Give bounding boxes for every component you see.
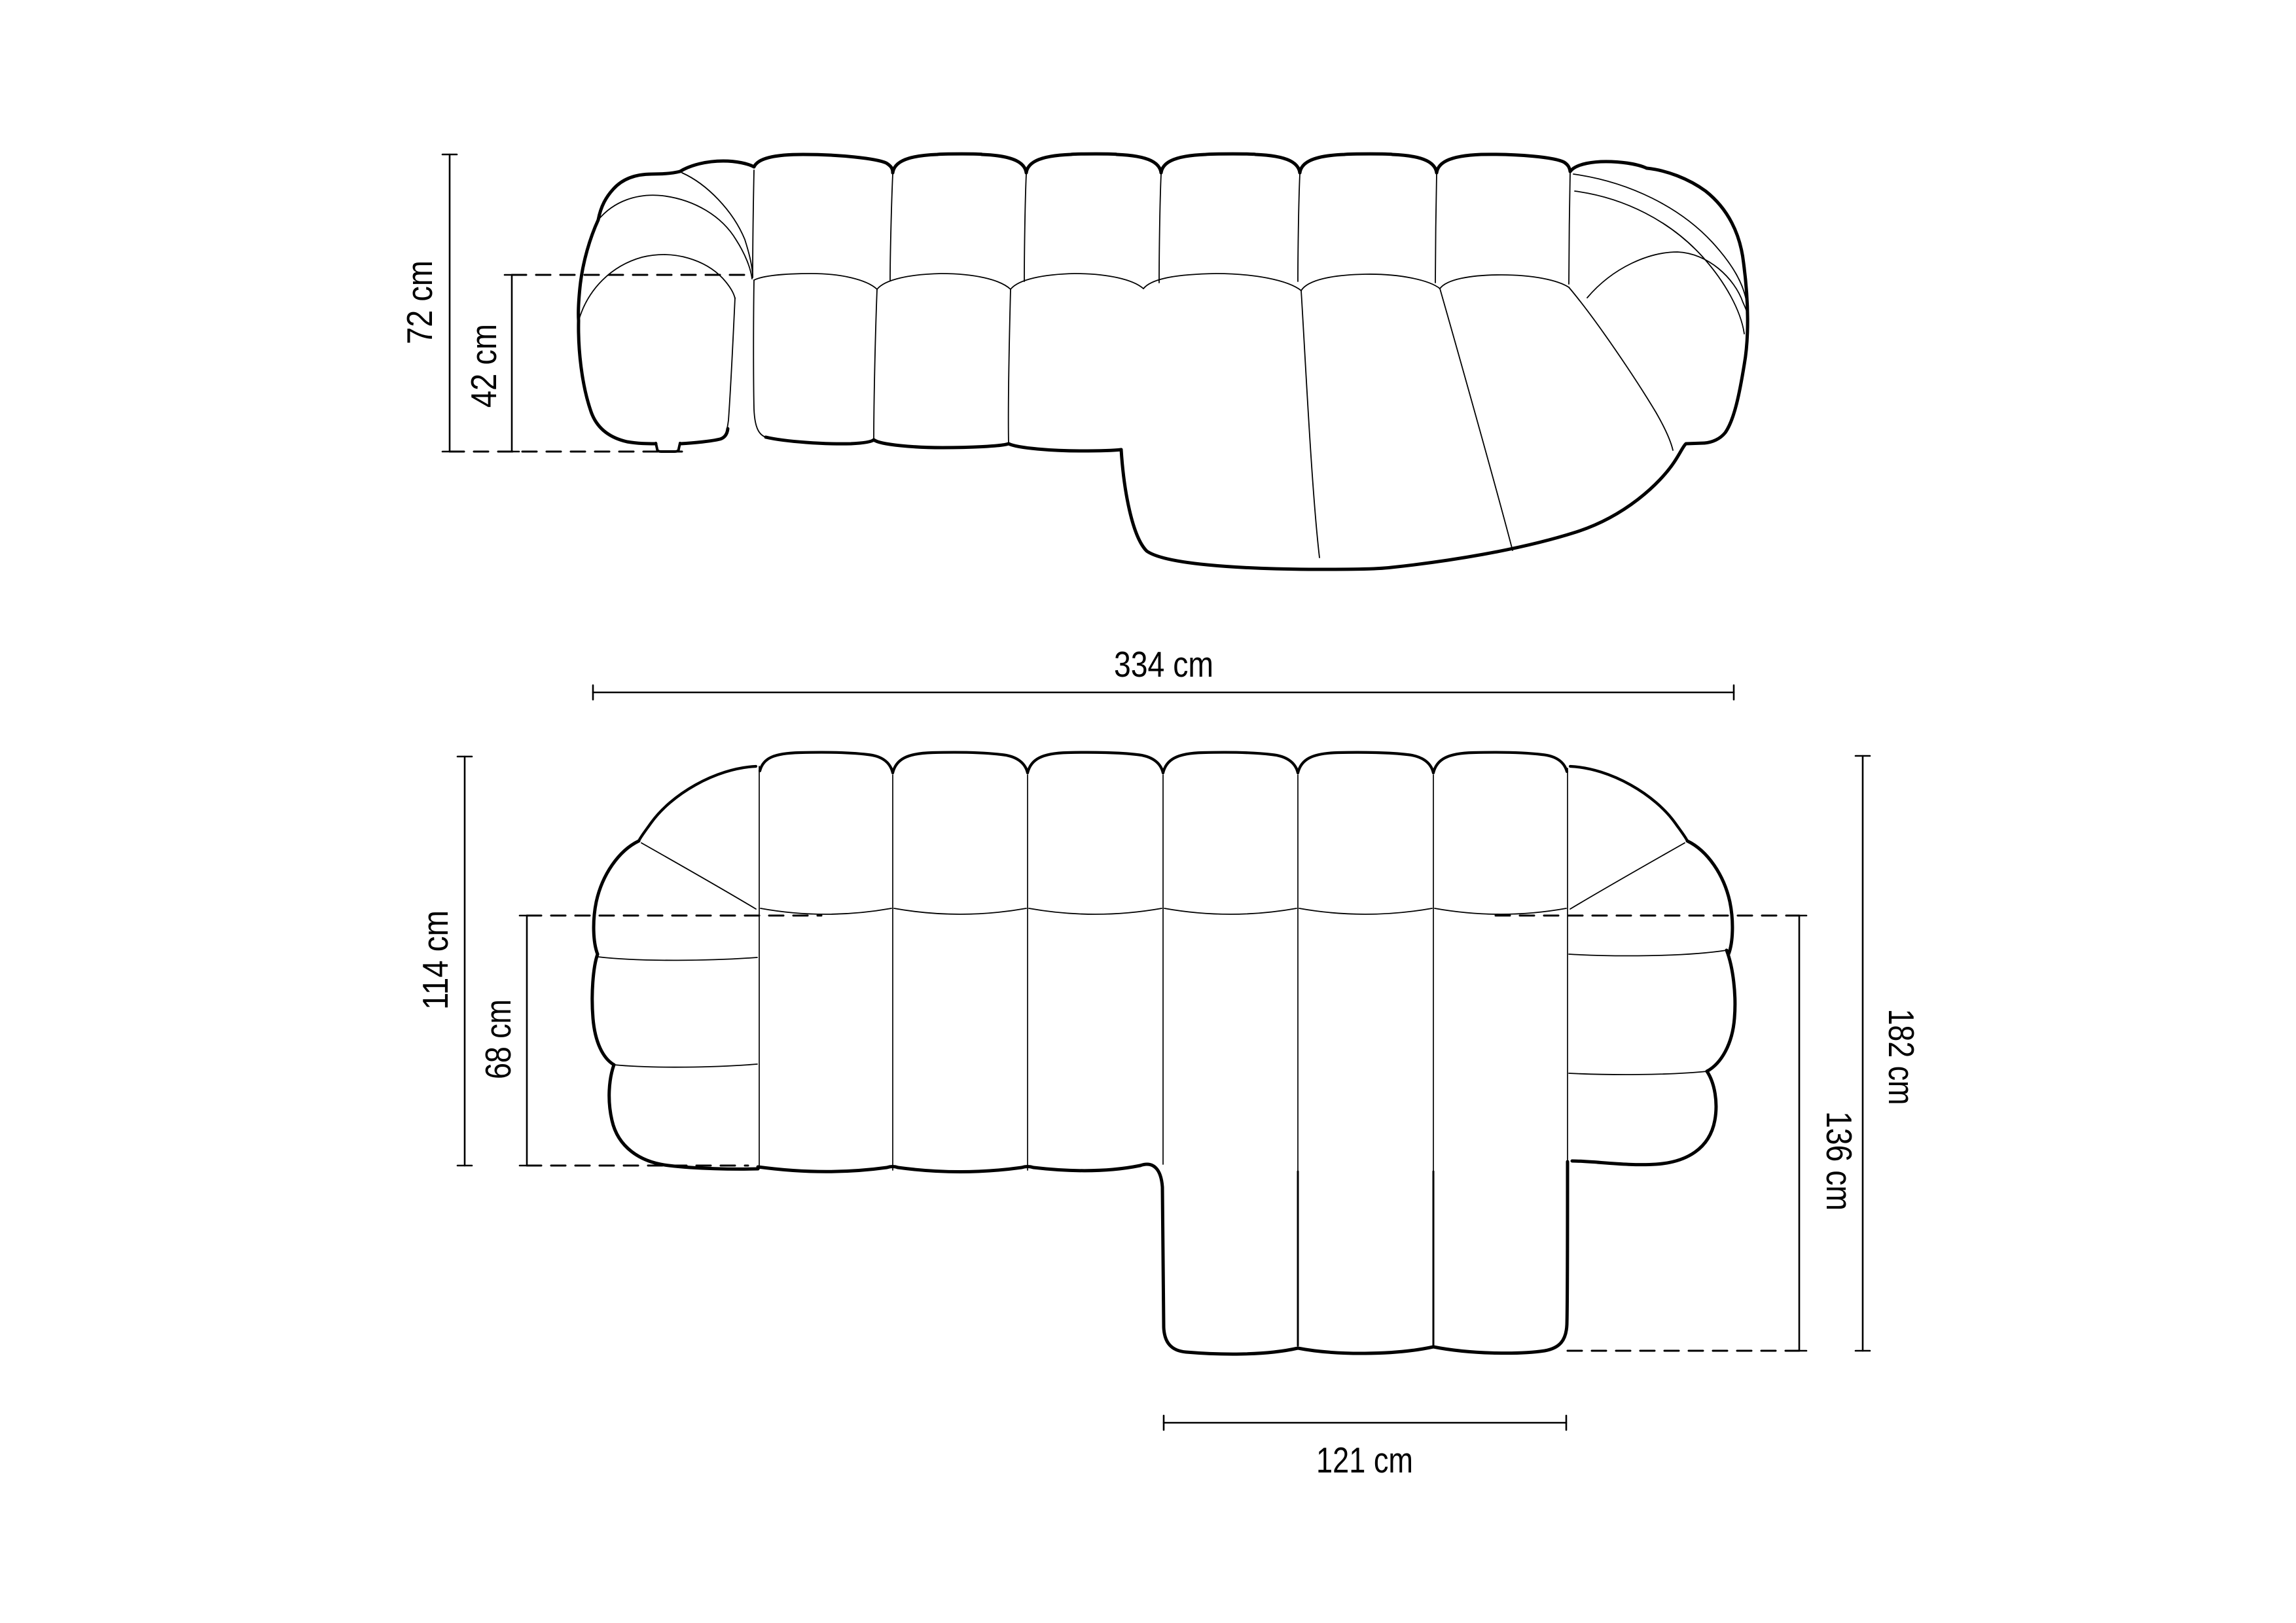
svg-text:42 cm: 42 cm	[463, 324, 504, 408]
svg-text:72 cm: 72 cm	[399, 260, 440, 344]
svg-text:136 cm: 136 cm	[1819, 1111, 1859, 1211]
svg-text:182 cm: 182 cm	[1881, 1009, 1922, 1105]
svg-text:114 cm: 114 cm	[415, 910, 456, 1010]
svg-text:121 cm: 121 cm	[1316, 1440, 1413, 1480]
svg-text:334 cm: 334 cm	[1114, 644, 1213, 685]
svg-text:68 cm: 68 cm	[478, 999, 518, 1079]
